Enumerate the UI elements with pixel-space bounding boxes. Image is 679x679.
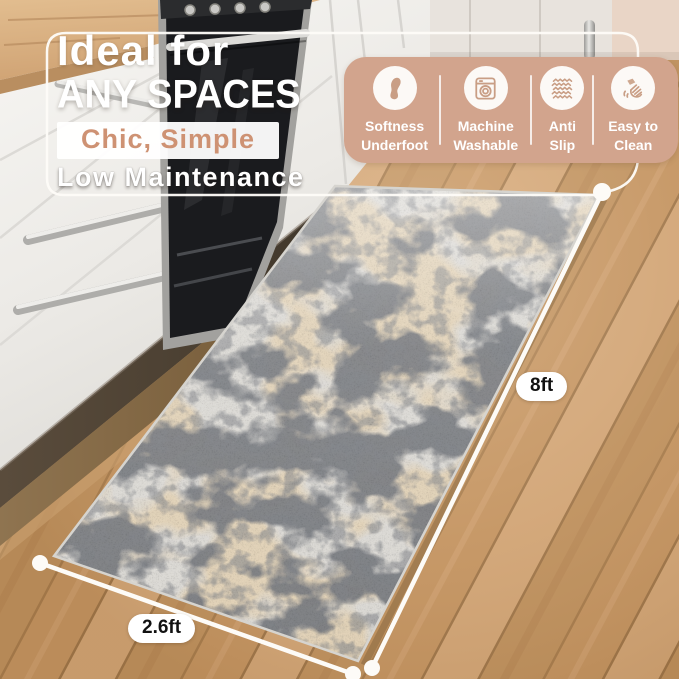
width-badge: 2.6ft [128, 614, 195, 643]
feature-softness: Softness Underfoot [350, 66, 439, 153]
feature-machine-washable: Machine Washable [441, 66, 530, 153]
features-banner: Softness Underfoot Machine Washable [344, 57, 678, 163]
anti-slip-icon [549, 75, 576, 102]
headline-block: Ideal for ANY SPACES Chic, Simple Low Ma… [57, 30, 337, 193]
measure-node-top [593, 183, 611, 201]
foot-icon [381, 75, 408, 102]
feature-label: Washable [453, 137, 518, 153]
feature-label: Easy to [608, 118, 658, 134]
feature-easy-clean: Easy to Clean [594, 66, 672, 153]
headline-accent: Chic, Simple [81, 124, 255, 154]
product-image: Ideal for ANY SPACES Chic, Simple Low Ma… [0, 0, 679, 679]
measure-node-left [32, 555, 48, 571]
headline-sub: Low Maintenance [57, 162, 337, 193]
feature-label: Anti [549, 118, 576, 134]
feature-label: Softness [365, 118, 424, 134]
feature-label: Machine [458, 118, 514, 134]
washing-machine-icon [472, 75, 499, 102]
measure-node-bottom-b [364, 660, 380, 676]
length-badge: 8ft [516, 372, 567, 401]
feature-label: Clean [614, 137, 652, 153]
headline-script: Ideal for [57, 30, 337, 72]
upper-wall [430, 0, 679, 60]
feature-label: Slip [550, 137, 576, 153]
headline-accent-band: Chic, Simple [57, 122, 279, 159]
headline-main: ANY SPACES [57, 75, 337, 115]
feature-anti-slip: Anti Slip [532, 66, 592, 153]
hand-wipe-icon [620, 75, 647, 102]
feature-label: Underfoot [361, 137, 428, 153]
